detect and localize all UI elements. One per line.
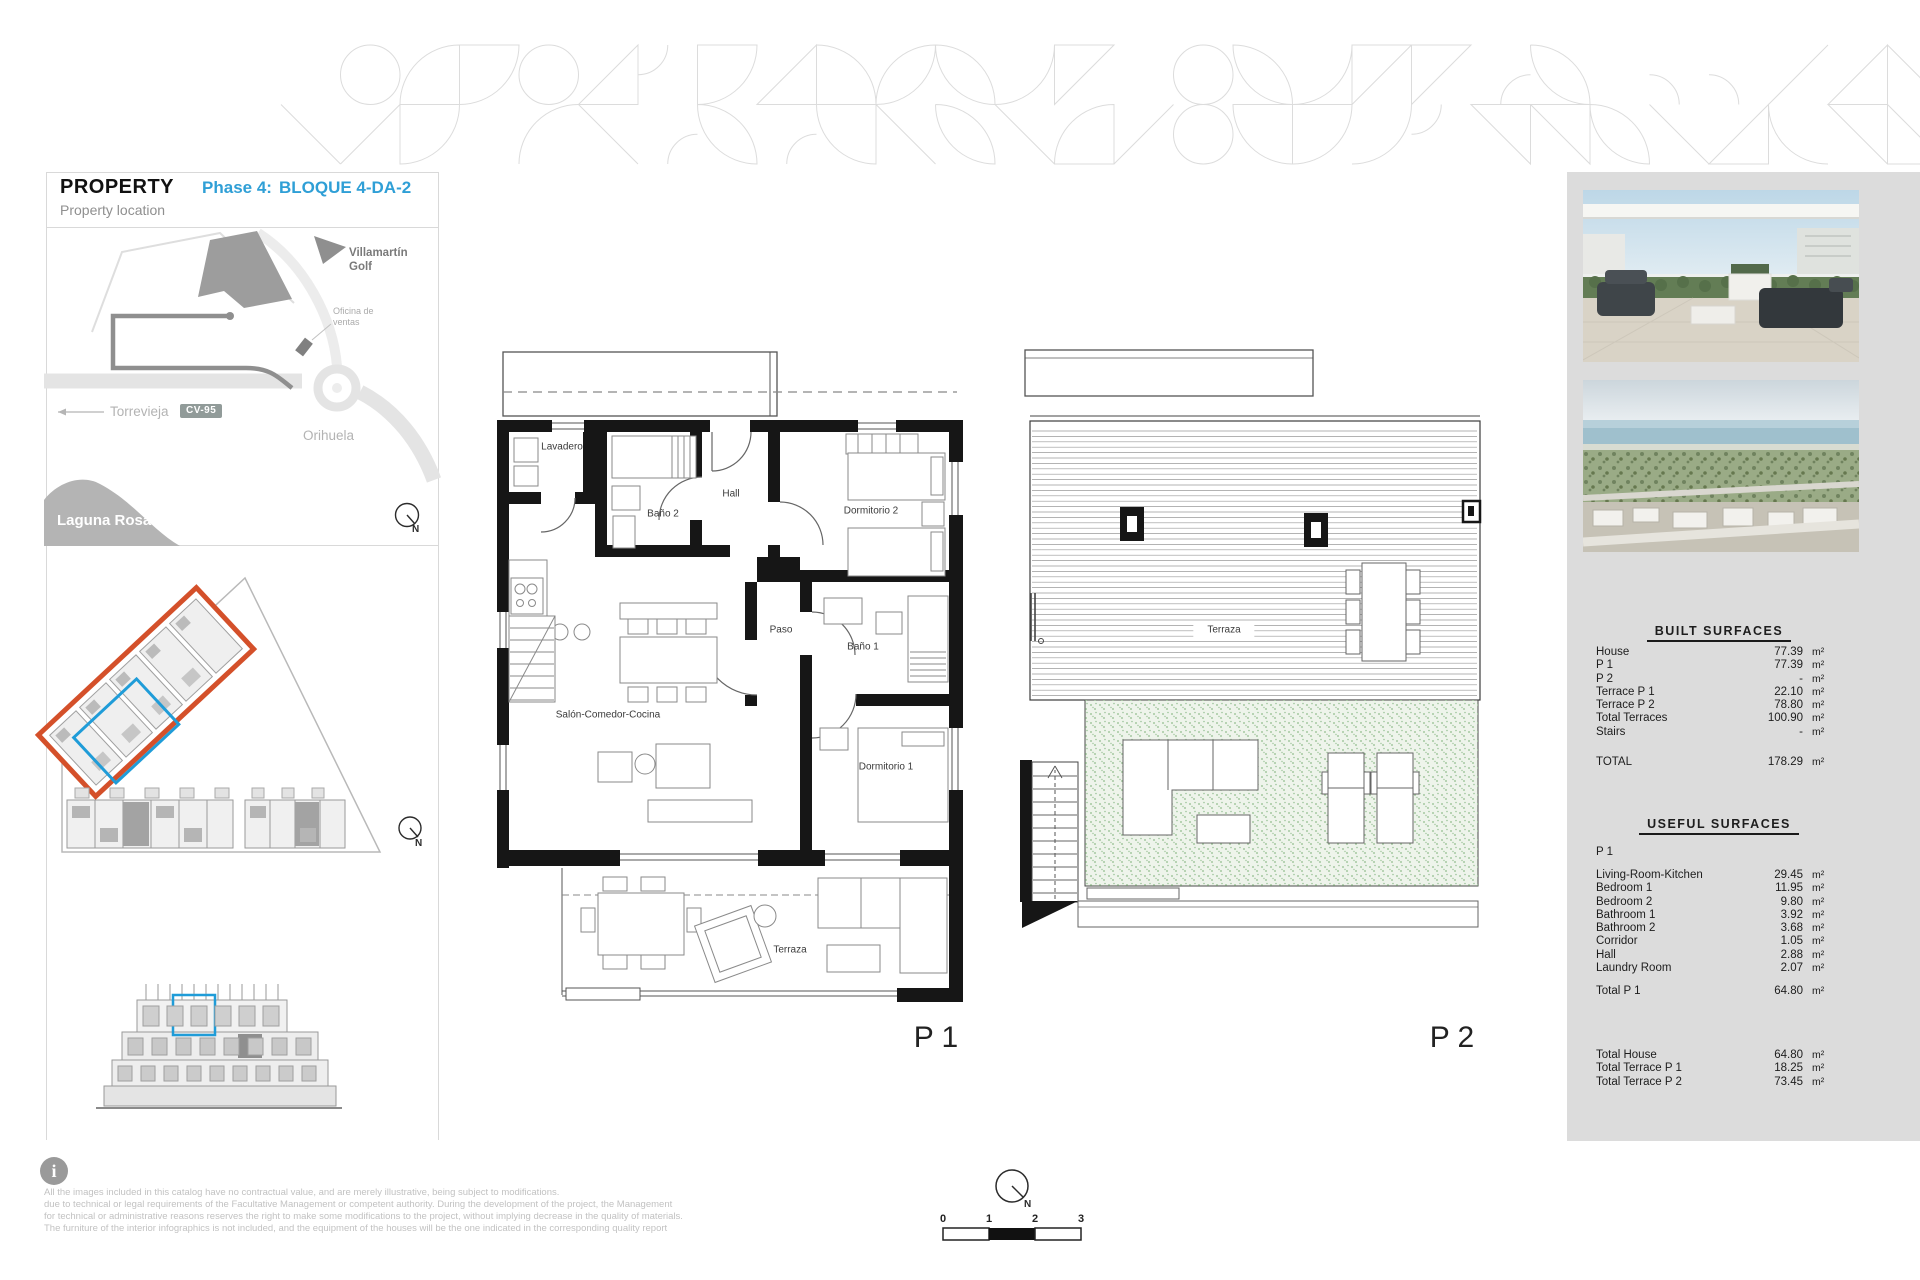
map-label-oficina: Oficina deventas: [333, 306, 374, 328]
page-title: PROPERTY: [60, 176, 174, 199]
built-total-row: TOTAL 178.29 m²: [1596, 756, 1842, 769]
road-badge: CV-95: [180, 404, 222, 418]
built-surfaces-table: BUILT SURFACES House77.39m²P 177.39m²P 2…: [1596, 622, 1842, 769]
surface-row: Bedroom 111.95m²: [1596, 882, 1842, 895]
p1-terrace: [562, 868, 949, 1000]
surface-row: Bathroom 23.68m²: [1596, 922, 1842, 935]
surface-row: Total House64.80m²: [1596, 1049, 1842, 1062]
catalog-page: PROPERTY Phase 4: BLOQUE 4-DA-2 Property…: [0, 0, 1920, 1280]
room-label-dormitorio1: Dormitorio 1: [859, 762, 913, 773]
block-label: BLOQUE 4-DA-2: [279, 178, 411, 198]
disclaimer-line: for technical or administrative reasons …: [44, 1211, 683, 1223]
map-label-torrevieja: Torrevieja: [110, 404, 169, 419]
plan-label-p1: P 1: [914, 1021, 959, 1055]
header-subtitle: Property location: [60, 202, 165, 218]
scale-bar: [943, 1228, 1081, 1240]
plan-label-p2: P 2: [1430, 1021, 1475, 1055]
surface-row: Terrace P 122.10m²: [1596, 686, 1842, 699]
scale-tick: 0: [940, 1213, 946, 1225]
surface-row: Total Terraces100.90m²: [1596, 712, 1842, 725]
useful-surfaces-section: P 1: [1596, 846, 1842, 859]
location-map: [44, 231, 434, 546]
room-label-dormitorio2: Dormitorio 2: [844, 506, 898, 517]
built-surfaces-title: BUILT SURFACES: [1647, 624, 1791, 642]
property-photo-terrace: [1583, 190, 1859, 362]
building-elevation: [96, 984, 342, 1108]
map-label-orihuela: Orihuela: [303, 428, 354, 443]
useful-surfaces-table: USEFUL SURFACES P 1 Living-Room-Kitchen2…: [1596, 815, 1842, 999]
p1-stairs: [509, 616, 555, 702]
surface-row: Total Terrace P 118.25m²: [1596, 1062, 1842, 1075]
scale-tick: 1: [986, 1213, 992, 1225]
room-label-paso: Paso: [770, 625, 793, 636]
surface-row: Total Terrace P 273.45m²: [1596, 1076, 1842, 1089]
map-label-villamartin: VillamartínGolf: [349, 246, 408, 274]
useful-total-row: Total P 1 64.80 m²: [1596, 985, 1842, 998]
surface-row: Terrace P 278.80m²: [1596, 699, 1842, 712]
property-photo-aerial: [1583, 380, 1859, 552]
room-label-bano2: Baño 2: [647, 509, 679, 520]
site-compass-n: N: [415, 838, 422, 849]
map-label-laguna-rosa: Laguna Rosa: [57, 512, 151, 529]
surface-row: Bathroom 13.92m²: [1596, 909, 1842, 922]
room-label-lavadero: Lavadero: [541, 442, 583, 453]
info-icon: i: [40, 1157, 68, 1185]
scale-tick: 2: [1032, 1213, 1038, 1225]
surface-row: Laundry Room2.07m²: [1596, 962, 1842, 975]
golf-arrow-icon: [314, 236, 346, 264]
scale-tick: 3: [1078, 1213, 1084, 1225]
disclaimer-line: due to technical or legal requirements o…: [44, 1199, 683, 1211]
site-buildings: [67, 788, 345, 848]
surface-row: P 177.39m²: [1596, 659, 1842, 672]
surface-row: House77.39m²: [1596, 646, 1842, 659]
surface-row: Stairs-m²: [1596, 726, 1842, 739]
room-label-salon: Salón-Comedor-Cocina: [556, 710, 661, 721]
highlighted-block: [38, 588, 256, 800]
surface-row: Corridor1.05m²: [1596, 935, 1842, 948]
useful-surfaces-title: USEFUL SURFACES: [1639, 817, 1799, 835]
phase-label: Phase 4:: [202, 178, 272, 198]
room-label-hall: Hall: [722, 489, 739, 500]
surface-row: P 2-m²: [1596, 673, 1842, 686]
disclaimer-line: All the images included in this catalog …: [44, 1187, 683, 1199]
floor-plan-p2: [1020, 350, 1480, 928]
sales-office-marker: [295, 338, 313, 357]
map-compass-n: N: [412, 524, 419, 535]
room-label-bano1: Baño 1: [847, 642, 879, 653]
room-label-terraza-p1: Terraza: [773, 945, 806, 956]
bottom-compass-n: N: [1024, 1199, 1031, 1210]
disclaimer-line: The furniture of the interior infographi…: [44, 1223, 683, 1235]
disclaimer: All the images included in this catalog …: [44, 1187, 683, 1235]
header: PROPERTY Phase 4: BLOQUE 4-DA-2: [60, 176, 411, 199]
site-compass-icon: [399, 817, 421, 839]
summary-totals-table: Total House64.80m²Total Terrace P 118.25…: [1596, 1049, 1842, 1089]
surface-row: Hall2.88m²: [1596, 949, 1842, 962]
bottom-compass-icon: [996, 1170, 1028, 1202]
surface-row: Bedroom 29.80m²: [1596, 896, 1842, 909]
surface-row: Living-Room-Kitchen29.45m²: [1596, 869, 1842, 882]
site-plan: [38, 578, 421, 852]
room-label-terraza-p2: Terraza: [1193, 623, 1254, 638]
